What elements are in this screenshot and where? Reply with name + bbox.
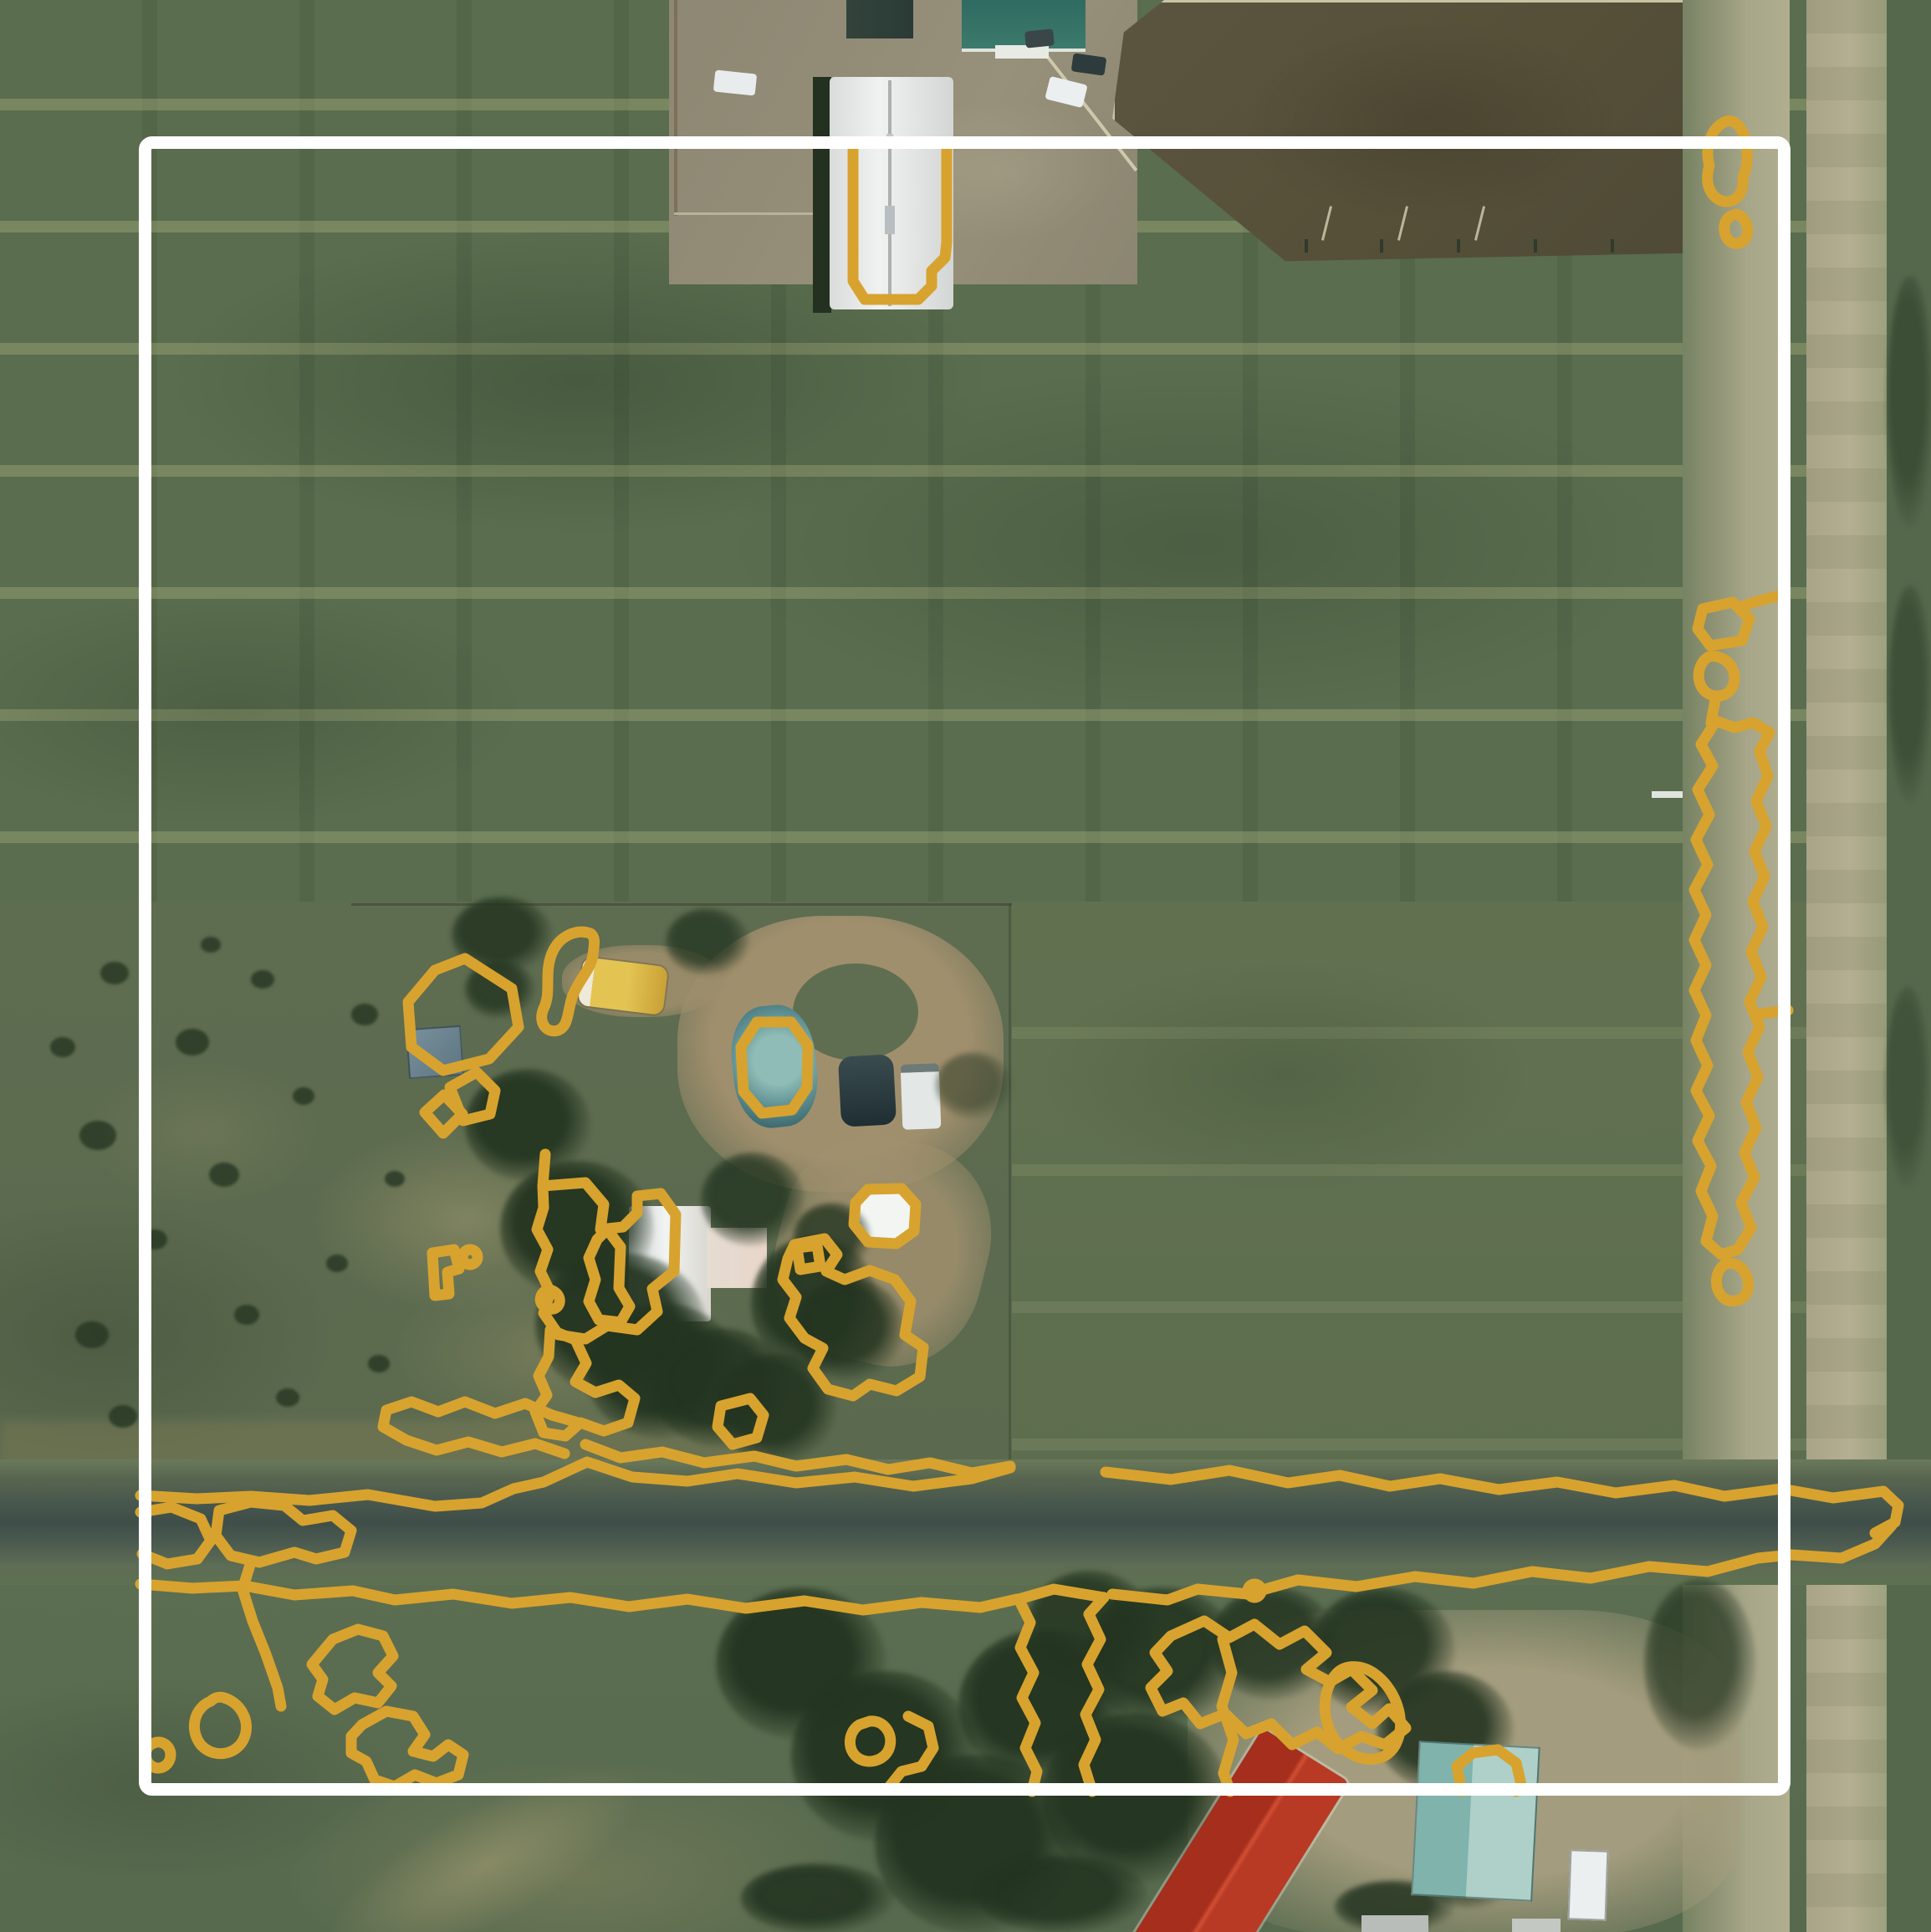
roi-bounding-box [139, 136, 1791, 1796]
satellite-scene [0, 0, 1931, 1932]
